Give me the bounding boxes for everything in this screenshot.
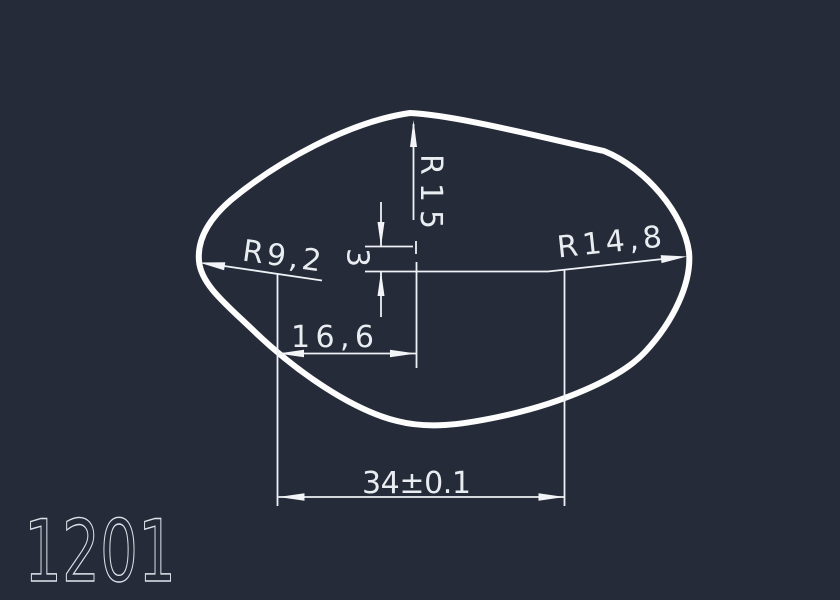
dim3-label: 3 [340, 248, 375, 268]
dim3-arrowhead-up-icon [378, 272, 385, 297]
r92-label: R9,2 [240, 234, 324, 280]
r148-arrowhead-right-icon [661, 255, 687, 263]
dimension-r14-8: R14,8 [548, 220, 687, 272]
r148-label: R14,8 [555, 220, 664, 266]
part-number-label: 1201 [24, 502, 176, 600]
dim166-arrowhead-right-icon [390, 350, 416, 357]
dim34-arrowhead-right-icon [539, 493, 565, 500]
dim3-arrowhead-down-icon [378, 222, 385, 247]
r15-arrowhead-up-icon [410, 120, 417, 147]
r15-label: R15 [413, 154, 448, 230]
center-mark [416, 241, 417, 368]
dimension-r15: R15 [410, 120, 448, 230]
dim166-label: 16,6 [291, 320, 375, 355]
dimension-r9-2: R9,2 [199, 234, 324, 281]
dimension-16-6: 16,6 [278, 320, 416, 357]
dim34-arrowhead-left-icon [279, 493, 305, 500]
technical-drawing: R15 3 R9,2 R14,8 [0, 0, 840, 600]
dim34-label: 34±0.1 [362, 466, 472, 501]
cad-drawing-canvas[interactable]: R15 3 R9,2 R14,8 [0, 0, 840, 600]
